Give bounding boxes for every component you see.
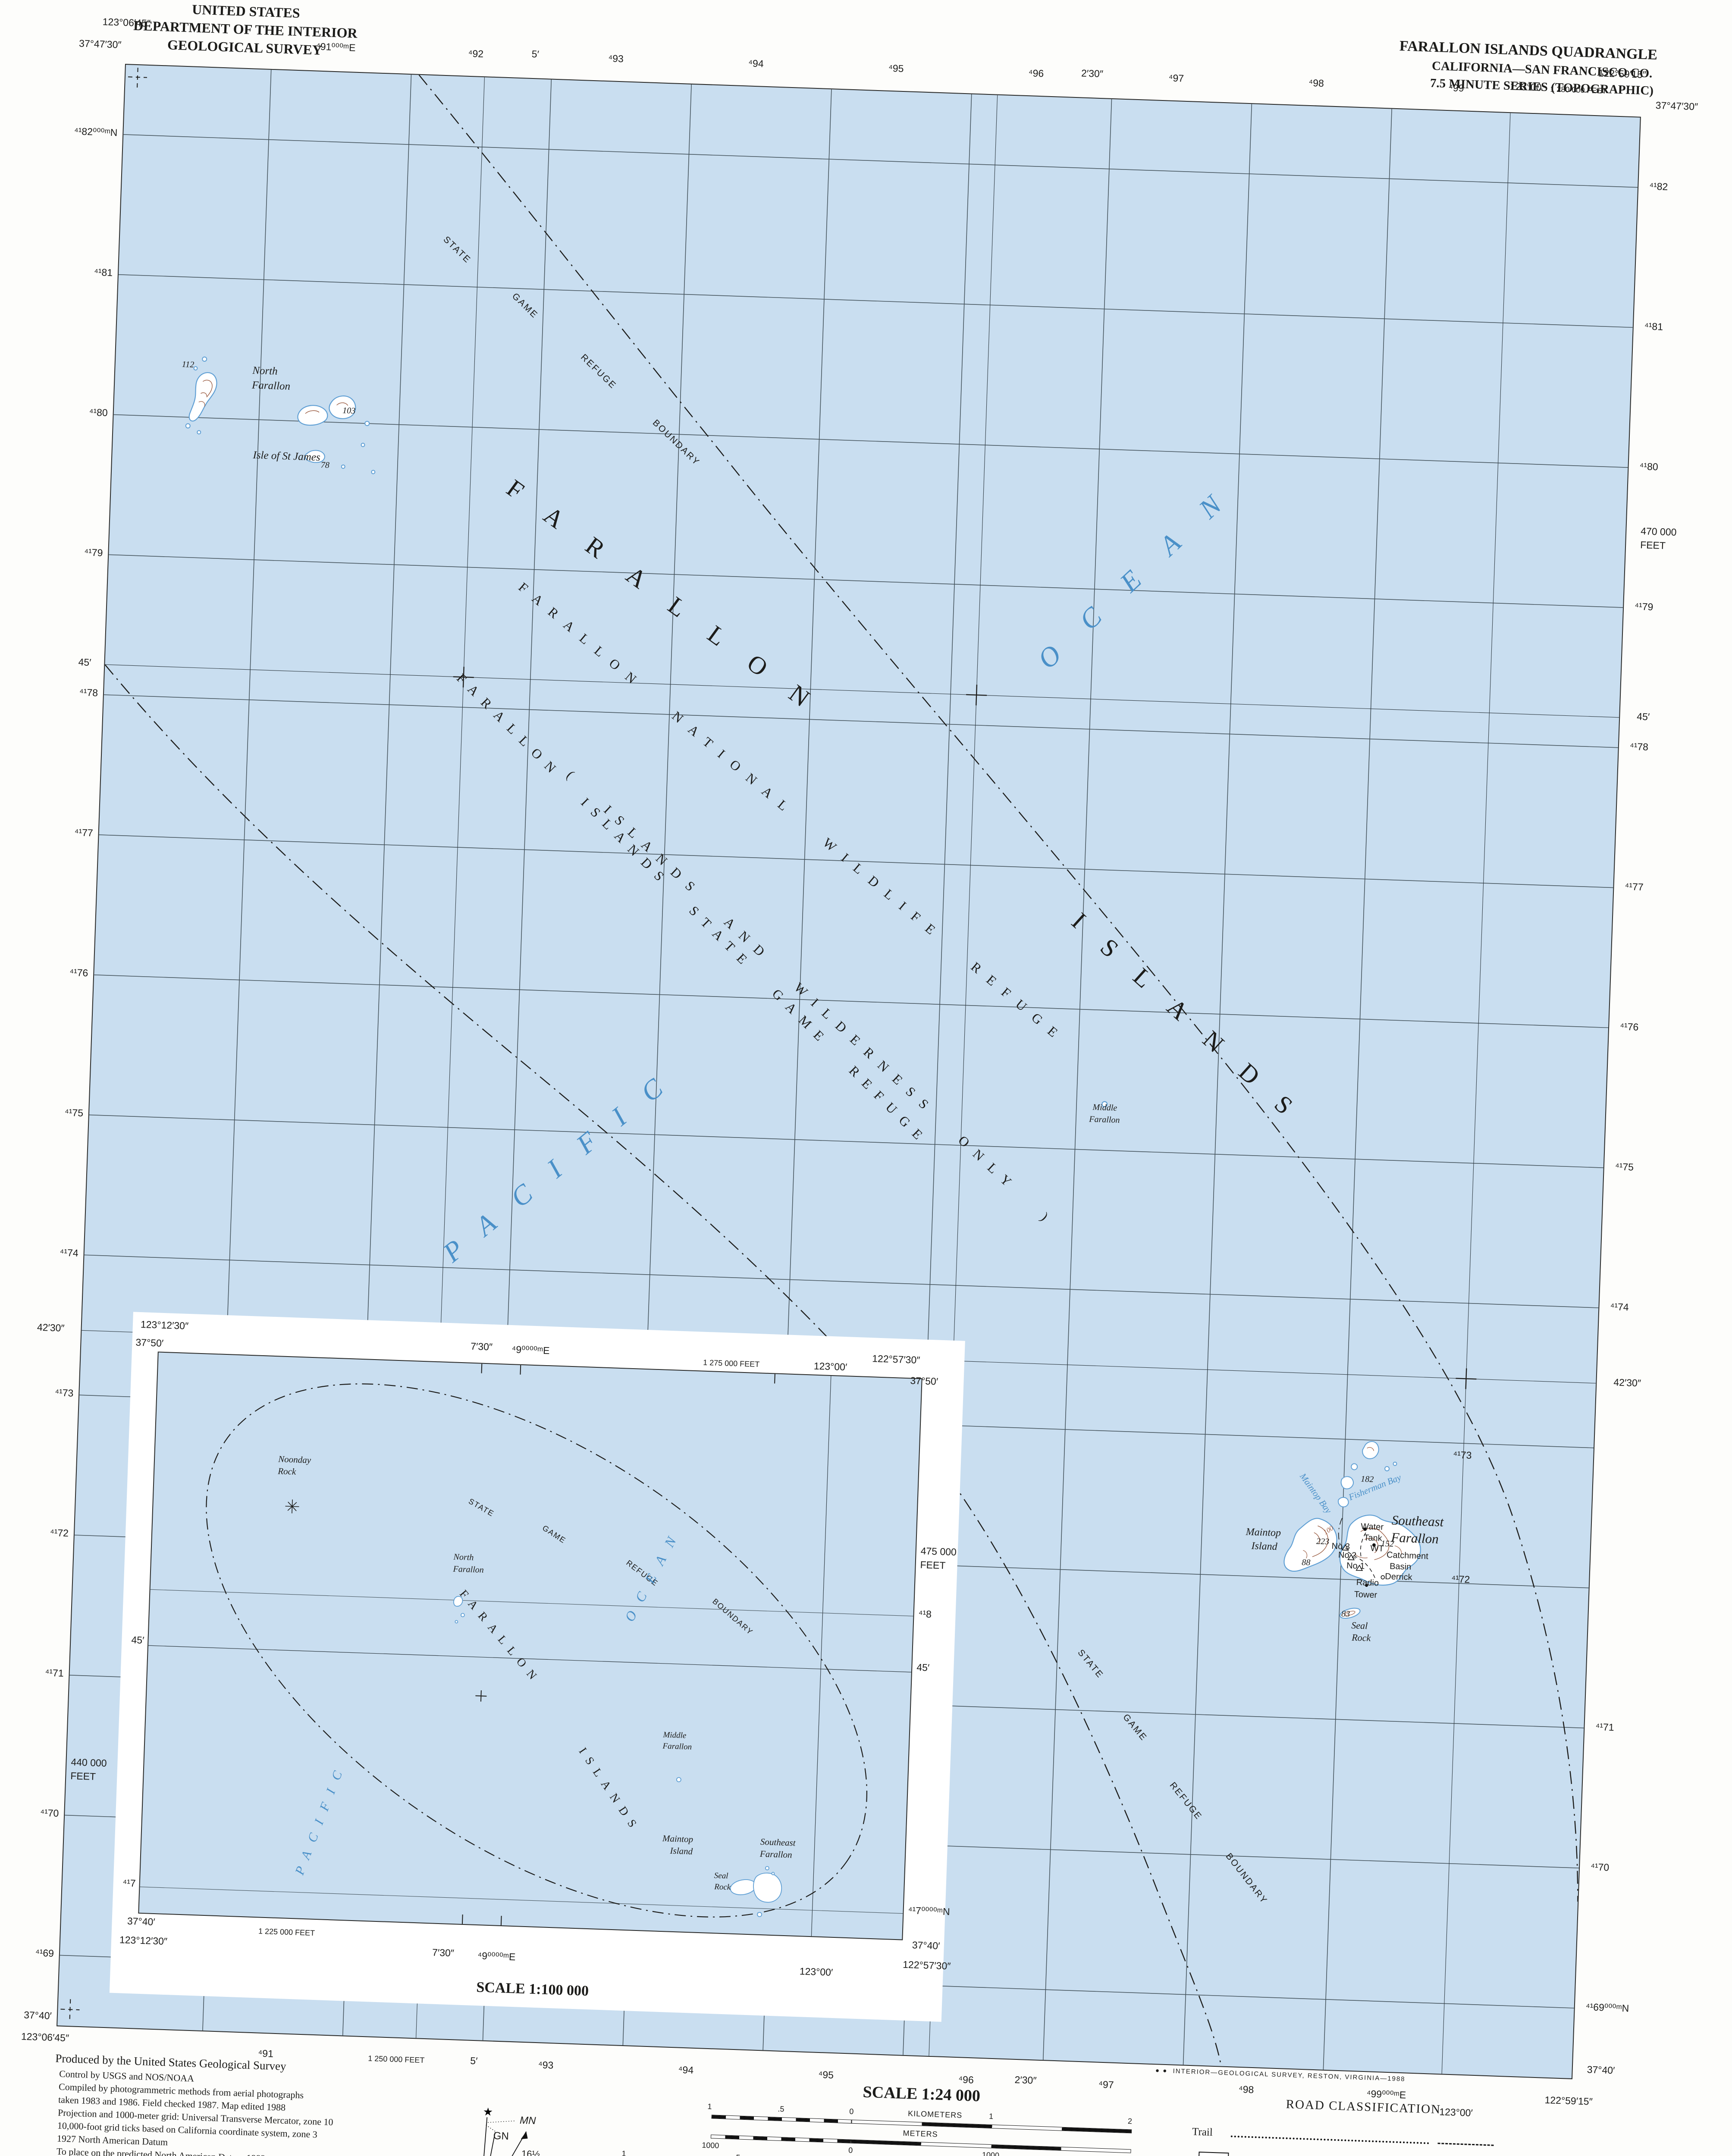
scalebar-m-fine <box>711 2134 851 2143</box>
inset-grid-label: 7′30″ <box>471 1341 493 1352</box>
grid-label-left: ⁴¹80 <box>89 407 108 418</box>
spot-elevation: 103 <box>342 406 356 416</box>
southeast-farallon-label: Farallon <box>1391 1531 1439 1546</box>
grid-label-right: ⁴¹77 <box>1625 881 1644 893</box>
noonday-rock-label: Rock <box>278 1466 296 1476</box>
scalebar-km <box>851 2120 1132 2134</box>
catchment-basin-label: Catchment <box>1387 1551 1428 1561</box>
derrick-label: Derrick <box>1385 1572 1412 1582</box>
state-plane-west-label: FEET <box>70 1771 96 1782</box>
graticule-label-right: 45′ <box>1637 711 1650 722</box>
inset-grid-label: ⁴9⁰⁰⁰⁰ᵐE <box>511 1344 550 1356</box>
grid-label-bottom: ⁴94 <box>678 2065 693 2075</box>
credit-line: Control by USGS and NOS/NOAA <box>59 2069 195 2084</box>
graticule-cross <box>475 1690 487 1702</box>
inset-corner: 123°12′30″ <box>119 1934 168 1946</box>
scalebar-tick: 0 <box>848 2146 853 2154</box>
inset-seal-rock-label: Seal <box>714 1871 728 1880</box>
header-usgs-line2: DEPARTMENT OF THE INTERIOR <box>133 19 358 41</box>
inset-grid-label: 475 000 <box>920 1545 957 1557</box>
printed-sheet: UNITED STATES DEPARTMENT OF THE INTERIOR… <box>0 0 1701 2156</box>
grid-label-right: ⁴¹82 <box>1649 181 1668 192</box>
scalebar-tick: 1 <box>707 2103 712 2111</box>
trail-legend-label: Trail <box>1192 2126 1213 2138</box>
inset-grid-label: 45′ <box>916 1662 930 1673</box>
corner-coordinate: 122°59′15″ <box>1598 68 1646 80</box>
inset-corner: 122°57′30″ <box>903 1959 951 1971</box>
inset-canvas <box>139 1353 921 1940</box>
grid-label-left: ⁴¹82⁰⁰⁰ᵐN <box>74 126 117 138</box>
scalebar-tick: 1000 <box>982 2151 1000 2156</box>
grid-label-bottom: 5′ <box>470 2056 478 2066</box>
state-plane-east-label: 470 000 <box>1641 526 1677 537</box>
inset-north-farallon-label: Farallon <box>453 1565 484 1575</box>
grid-label-top: ⁴91⁰⁰⁰ᵐE <box>316 41 355 53</box>
scalebar-tick: .5 <box>778 2105 784 2113</box>
spot-elevation: 83 <box>1341 1610 1350 1619</box>
middle-farallon-label: Farallon <box>1089 1115 1120 1125</box>
credit-line: To place on the predicted North American… <box>56 2146 266 2156</box>
mn-declination-value: 16½ <box>521 2149 540 2156</box>
spot-elevation: 88 <box>1302 1558 1311 1567</box>
inset-corner: 37°50′ <box>135 1337 163 1348</box>
scalebar-tick: .5 <box>734 2153 740 2156</box>
quadrangle-location-map: CALIF. <box>1183 2149 1269 2156</box>
noonday-rock-symbol <box>285 1499 299 1514</box>
graticule-label-left: 42′30″ <box>37 1322 65 1333</box>
inset-maintop-label: Island <box>670 1846 693 1856</box>
grid-label-left: ⁴¹77 <box>74 827 93 838</box>
inset-north-farallon-label: North <box>453 1553 474 1563</box>
inset-islands <box>443 1596 791 1918</box>
grid-label-left: ⁴¹73 <box>55 1387 74 1398</box>
corner-coordinate: 37°47′30″ <box>1655 100 1698 112</box>
corner-coordinate: 122°59′15″ <box>1544 2095 1593 2107</box>
grid-label-right: ⁴¹70 <box>1591 1861 1610 1873</box>
inset-grid-label: 45′ <box>131 1635 144 1645</box>
inset-grid-label: ⁴¹8 <box>918 1608 932 1619</box>
scalebar-unit: METERS <box>903 2129 938 2139</box>
grid-label-left: ⁴¹81 <box>94 267 113 278</box>
grid-label-right: ⁴¹76 <box>1620 1021 1639 1032</box>
inset-corner: 37°50′ <box>910 1375 938 1386</box>
grid-label-left: ⁴¹75 <box>65 1107 84 1119</box>
north-farallon-label: Farallon <box>252 380 291 392</box>
spot-elevation: 223 <box>1316 1537 1330 1546</box>
seal-rock-label: Rock <box>1352 1632 1371 1643</box>
inset-middle-farallon-label: Middle <box>663 1731 686 1740</box>
water-tank-label: Water <box>1361 1522 1384 1532</box>
grid-label-bottom: ⁴99⁰⁰⁰ᵐE <box>1366 2088 1406 2100</box>
california-outline <box>1183 2149 1269 2156</box>
corner-coordinate: 37°47′30″ <box>79 38 122 50</box>
well-no1-label: No 1 <box>1346 1561 1365 1571</box>
catchment-basin-label: Basin <box>1390 1562 1412 1572</box>
grid-label-left: ⁴¹79 <box>84 547 103 558</box>
inset-corner: 122°57′30″ <box>872 1353 920 1365</box>
scalebar-tick: 0 <box>849 2108 854 2116</box>
inset-grid-label: FEET <box>920 1559 946 1570</box>
inset-corner: 123°12′30″ <box>141 1319 189 1331</box>
spot-elevation: 152 <box>1381 1539 1394 1549</box>
scalebar-unit: KILOMETERS <box>908 2109 963 2119</box>
inset-map-1-100000: 123°12′30″ 37°50′ 7′30″ ⁴9⁰⁰⁰⁰ᵐE 1 275 0… <box>110 1312 965 2021</box>
grid-label-bottom: ⁴97 <box>1098 2079 1114 2090</box>
grid-label-right: ⁴¹69⁰⁰⁰ᵐN <box>1585 2002 1629 2014</box>
state-plane-east-label: FEET <box>1640 539 1666 551</box>
grid-label-left: ⁴¹76 <box>69 967 88 978</box>
interior-grid-label: ⁴¹73 <box>1453 1449 1472 1460</box>
grid-label-top: 2′30″ <box>1081 68 1104 79</box>
inset-map-water <box>138 1351 922 1940</box>
inset-southeast-label: Southeast <box>760 1837 796 1848</box>
scalebar-tick: 1000 <box>702 2141 719 2150</box>
grid-label-bottom: ⁴98 <box>1238 2084 1254 2095</box>
isle-of-st-james-label: Isle of St James <box>253 450 320 464</box>
spot-elevation: 182 <box>1361 1475 1374 1484</box>
grid-label-right: ⁴¹79 <box>1635 601 1654 612</box>
state-game-refuge-boundary <box>139 1353 921 1940</box>
maintop-island-label: Island <box>1251 1541 1277 1552</box>
grid-label-top: 123°00′ <box>1510 81 1544 93</box>
grid-north-label: GN <box>493 2131 509 2142</box>
grid-label-left: ⁴¹72 <box>50 1527 69 1539</box>
inset-grid-label: 123°00′ <box>813 1361 847 1373</box>
corner-coordinate: 123°06′45″ <box>21 2031 69 2043</box>
grid-label-right: ⁴¹81 <box>1644 321 1663 332</box>
corner-coordinate: 37°40′ <box>24 2010 52 2021</box>
grid-label-top: ⁴98 <box>1308 78 1324 88</box>
grid-label-top: ⁴95 <box>888 63 904 74</box>
north-farallon-label: North <box>252 365 278 377</box>
inset-grid-label: 123°00′ <box>799 1966 833 1977</box>
grid-label-bottom: 123°00′ <box>1439 2106 1473 2118</box>
state-plane-west-label: 440 000 <box>71 1757 107 1768</box>
grid-label-bottom: ⁴96 <box>958 2074 974 2085</box>
water-tank-label: Tank <box>1364 1533 1382 1543</box>
inset-grid-label: 1 225 000 FEET <box>258 1927 315 1937</box>
scale-title: SCALE 1:24 000 <box>863 2084 981 2105</box>
grid-label-left: ⁴¹70 <box>40 1808 59 1819</box>
radio-tower-label: Tower <box>1354 1590 1377 1600</box>
grid-label-left: ⁴¹74 <box>60 1247 78 1258</box>
grid-label-right: ⁴¹80 <box>1639 461 1658 472</box>
inset-maintop-label: Maintop <box>662 1833 693 1844</box>
trail-legend-symbol <box>1231 2135 1429 2144</box>
well-no2-label: No 2 <box>1338 1551 1357 1560</box>
grid-label-right: ⁴¹74 <box>1610 1301 1629 1313</box>
spot-elevation: 112 <box>182 360 194 370</box>
graticule-label-right: 42′30″ <box>1613 1377 1641 1388</box>
grid-label-left: ⁴¹78 <box>79 687 98 698</box>
grid-label-right: ⁴¹75 <box>1615 1161 1634 1172</box>
inset-seal-rock-label: Rock <box>714 1883 731 1892</box>
inset-scale-label: SCALE 1:100 000 <box>476 1980 589 1999</box>
grid-label-bottom: 1 250 000 FEET <box>368 2054 425 2064</box>
inset-grid-label: ⁴¹7 <box>122 1877 136 1888</box>
southeast-farallon-label: Southeast <box>1391 1514 1444 1529</box>
corner-coordinate: 37°40′ <box>1587 2064 1615 2075</box>
grid-label-right: ⁴¹71 <box>1595 1721 1614 1733</box>
grid-label-bottom: 2′30″ <box>1014 2075 1037 2086</box>
true-north-star-icon: ★ <box>483 2105 493 2118</box>
credit-dots: ● ● <box>1155 2067 1173 2075</box>
scalebar-tick: 1 <box>989 2112 994 2121</box>
inset-grid-label: 1 275 000 FEET <box>703 1359 760 1369</box>
grid-label-top: ⁴96 <box>1028 68 1044 78</box>
grid-label-bottom: ⁴91 <box>258 2048 273 2059</box>
middle-farallon-label: Middle <box>1092 1103 1117 1113</box>
grid-label-top: ⁴97 <box>1168 72 1184 83</box>
seal-rock-label: Seal <box>1351 1620 1368 1630</box>
scalebar-tick: 1 <box>621 2150 626 2156</box>
grid-label-top: ⁴92 <box>468 48 483 59</box>
inset-southeast-label: Farallon <box>760 1849 792 1860</box>
grid-label-top: ⁴93 <box>608 53 624 64</box>
trail-legend-symbol-dash <box>1437 2143 1494 2146</box>
inset-grid-label: 7′30″ <box>432 1947 455 1959</box>
corner-coordinate: 123°06′45″ <box>102 16 151 28</box>
noonday-rock-label: Noonday <box>278 1454 311 1465</box>
road-classification-title: ROAD CLASSIFICATION <box>1286 2098 1441 2116</box>
declination-canvas: ★ <box>410 2103 595 2156</box>
grid-label-top: ⁴94 <box>748 58 764 69</box>
radio-tower-label: Radio <box>1356 1578 1379 1588</box>
header-usgs-line1: UNITED STATES <box>192 2 300 20</box>
inset-corner: 37°40′ <box>127 1916 155 1927</box>
grid-label-left: ⁴¹69 <box>35 1947 54 1959</box>
spot-elevation: 78 <box>320 461 329 470</box>
inset-grid-label: ⁴¹7⁰⁰⁰⁰ᵐN <box>908 1905 950 1917</box>
maintop-island-label: Maintop <box>1246 1527 1281 1539</box>
grid-label-left: ⁴¹71 <box>45 1667 64 1679</box>
interior-grid-label: ⁴¹72 <box>1451 1573 1470 1585</box>
declination-diagram: ★ GN MN 0°02′ 01 MILS 16½ 293 MILS UTM G… <box>409 2103 596 2156</box>
scalebar-km-fine <box>712 2115 852 2123</box>
magnetic-north-label: MN <box>520 2115 536 2126</box>
grid-label-bottom: ⁴93 <box>538 2059 553 2070</box>
inset-corner: 37°40′ <box>912 1940 940 1951</box>
scalebar-tick: 2 <box>1128 2117 1133 2125</box>
inset-grid-label: ⁴9⁰⁰⁰⁰ᵐE <box>477 1950 516 1962</box>
grid-label-right: ⁴¹78 <box>1629 741 1648 752</box>
credit-line: 1927 North American Datum <box>57 2133 168 2147</box>
inset-middle-farallon-label: Farallon <box>662 1742 692 1752</box>
grid-label-top: ⁴99 <box>1449 82 1464 93</box>
header-usgs-line3: GEOLOGICAL SURVEY <box>167 38 323 57</box>
grid-label-bottom: ⁴95 <box>818 2069 834 2080</box>
grid-label-top: 5′ <box>531 49 539 60</box>
graticule-label-left: 45′ <box>78 657 91 667</box>
